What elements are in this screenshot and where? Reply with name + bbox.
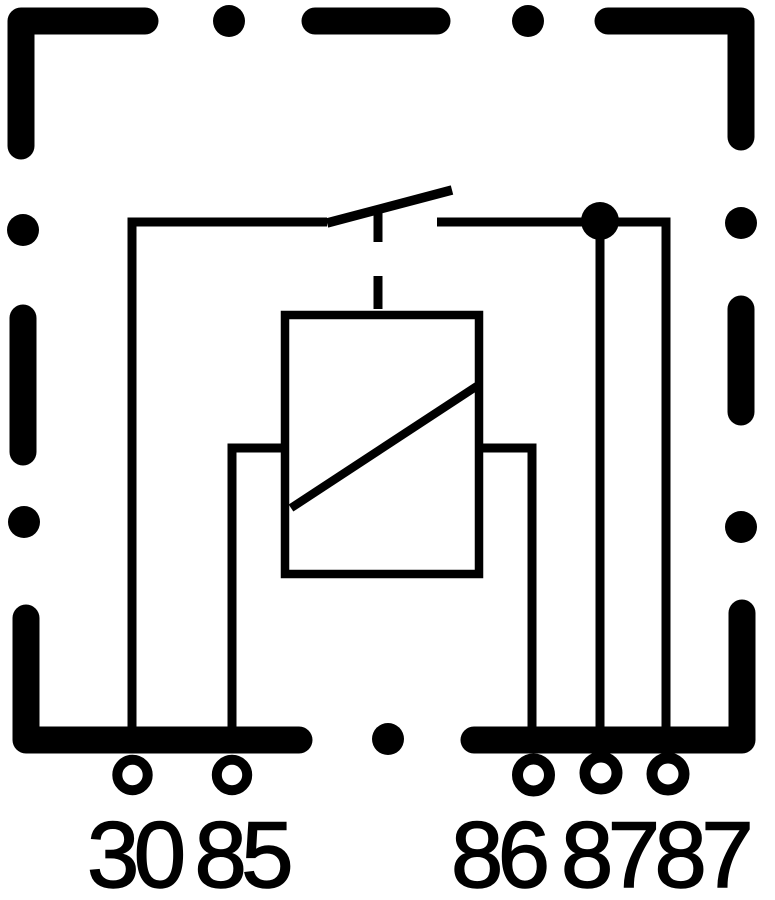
svg-text:86: 86 <box>451 802 547 900</box>
svg-text:30: 30 <box>87 802 183 900</box>
svg-text:8787: 8787 <box>561 802 749 900</box>
svg-text:85: 85 <box>195 802 291 900</box>
